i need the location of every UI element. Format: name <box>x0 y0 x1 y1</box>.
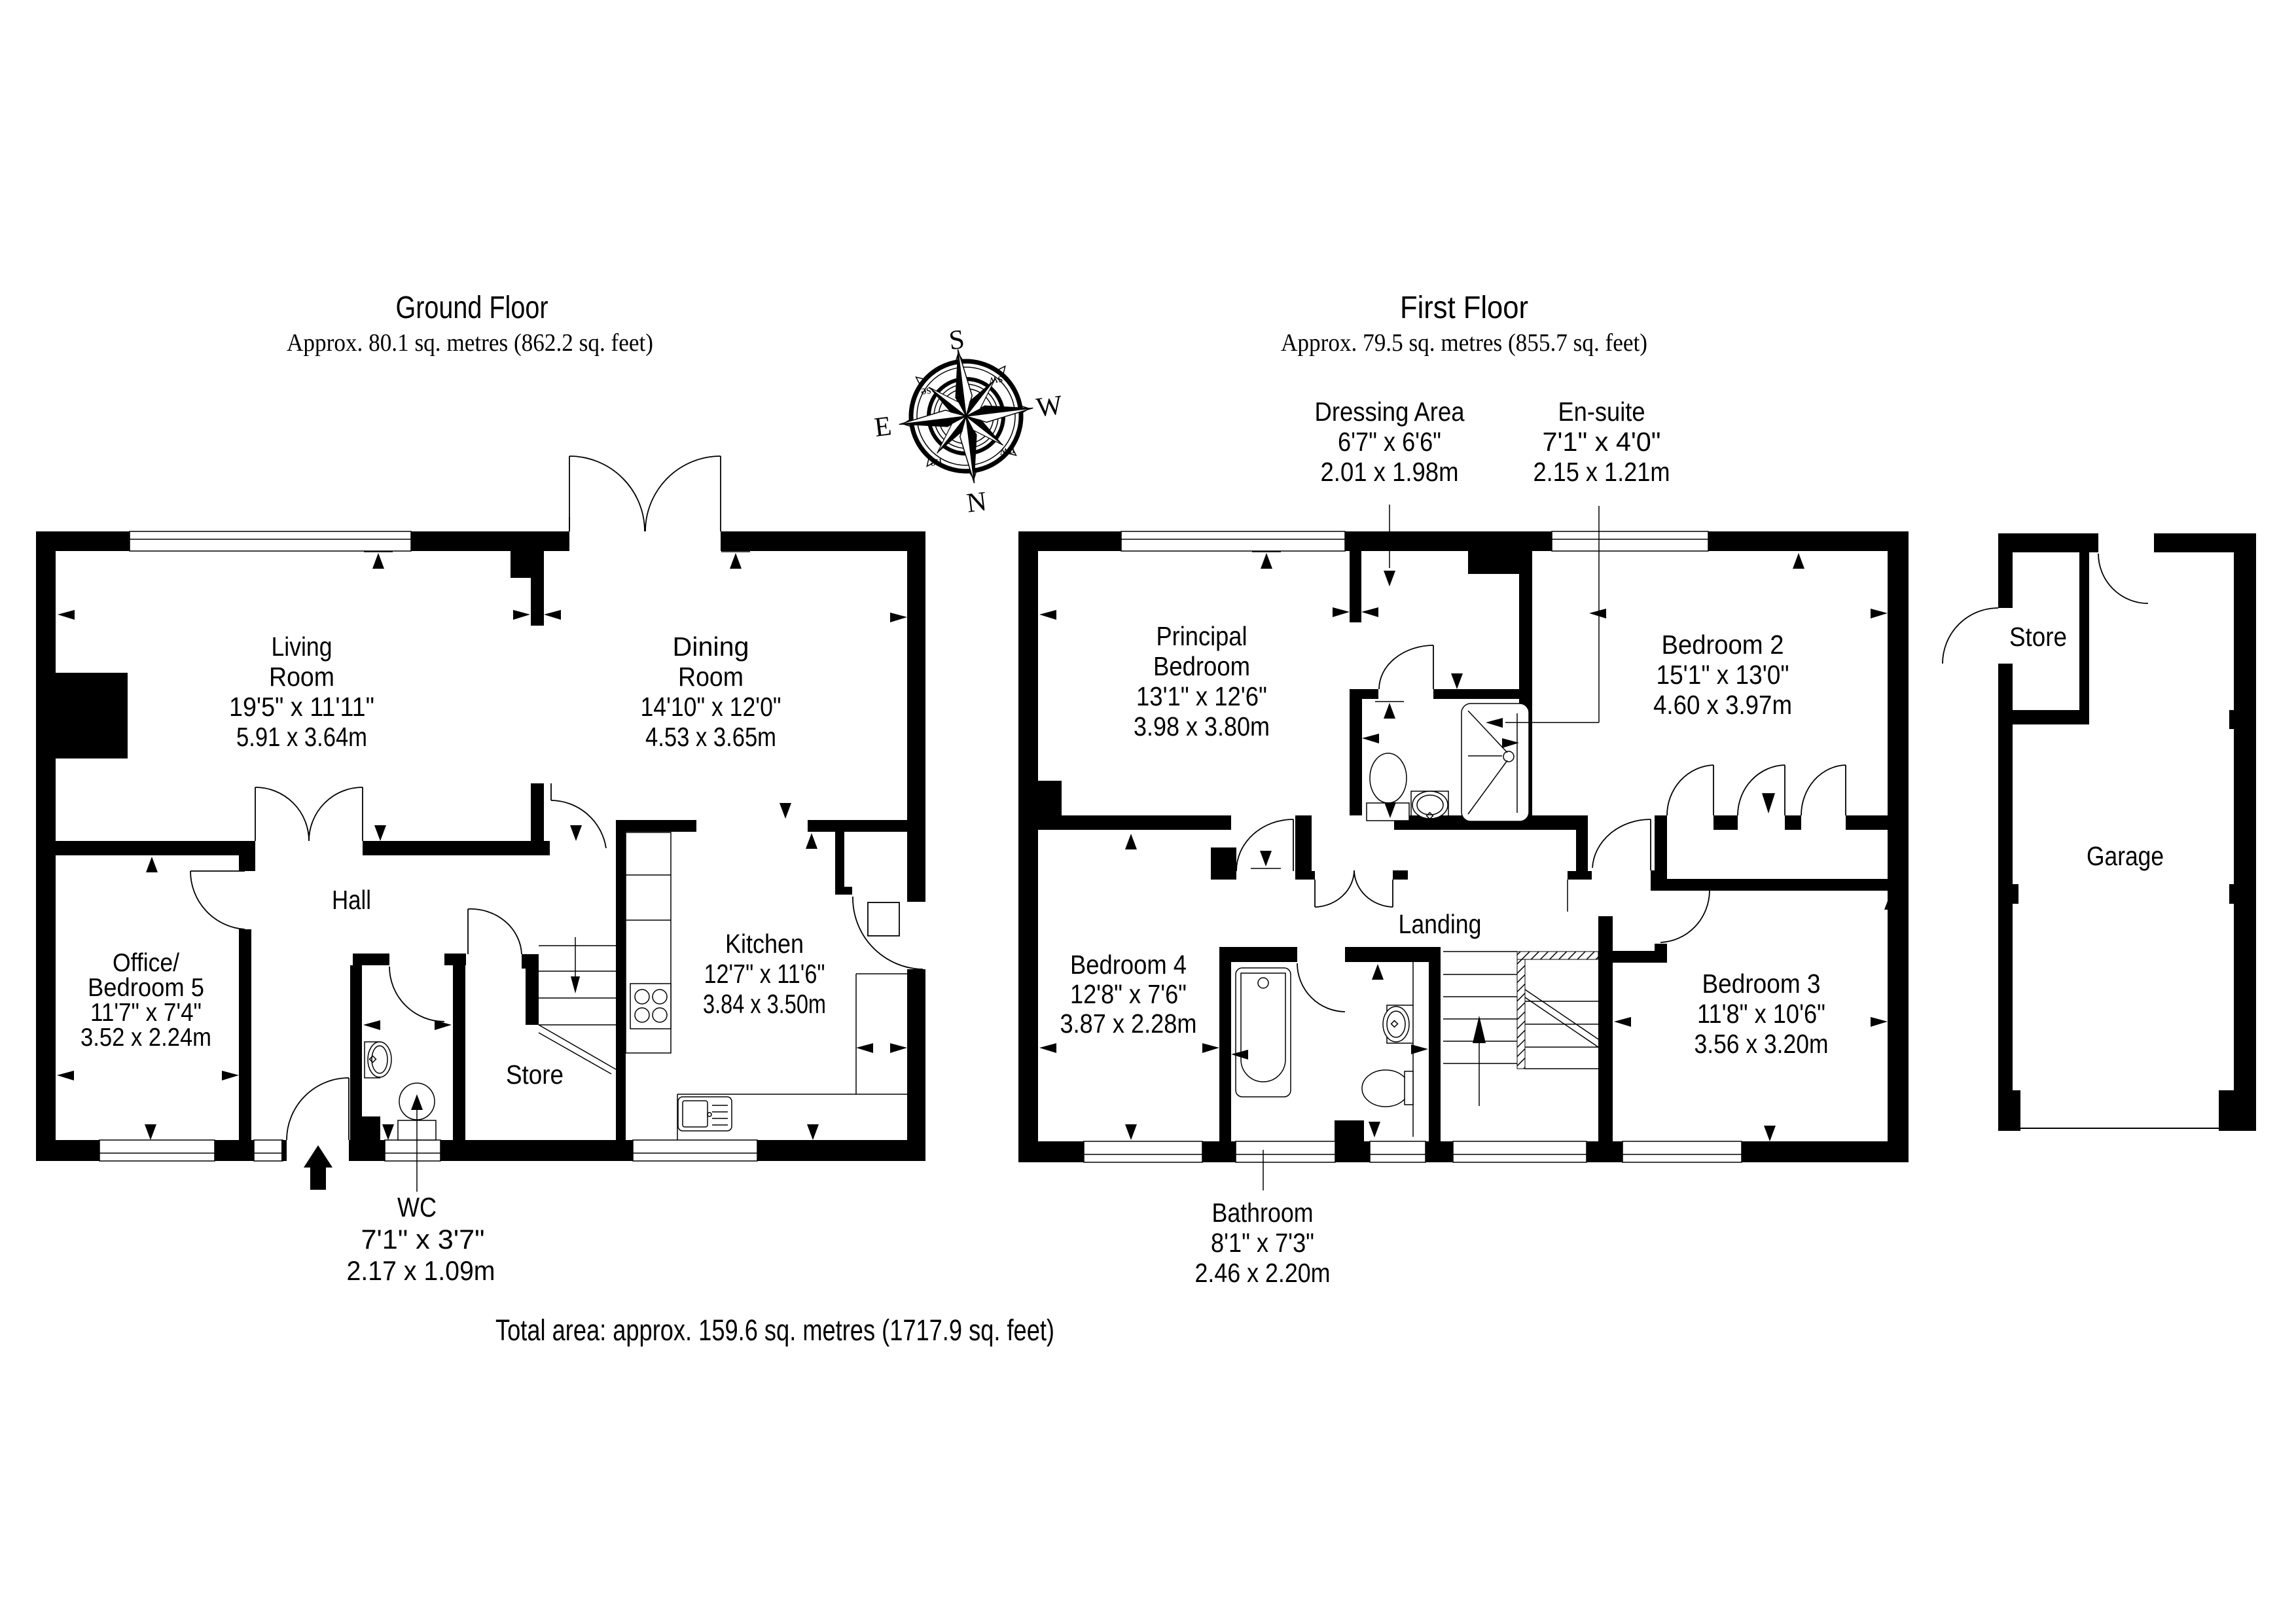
svg-text:3.84 x 3.50m: 3.84 x 3.50m <box>703 989 826 1019</box>
svg-text:N: N <box>965 486 988 518</box>
svg-text:W: W <box>1035 390 1064 423</box>
svg-text:Room: Room <box>678 662 744 692</box>
svg-text:Bedroom: Bedroom <box>1153 651 1250 681</box>
svg-text:Approx. 80.1 sq. metres (862.2: Approx. 80.1 sq. metres (862.2 sq. feet) <box>287 329 653 357</box>
svg-text:13'1" x 12'6": 13'1" x 12'6" <box>1136 681 1267 711</box>
svg-text:Garage: Garage <box>2087 841 2164 871</box>
svg-text:4.60 x 3.97m: 4.60 x 3.97m <box>1653 690 1792 720</box>
svg-text:2.01 x 1.98m: 2.01 x 1.98m <box>1321 457 1459 487</box>
svg-text:Living: Living <box>272 632 332 662</box>
svg-text:2.17 x 1.09m: 2.17 x 1.09m <box>347 1255 495 1286</box>
svg-text:Bedroom 3: Bedroom 3 <box>1702 969 1821 999</box>
svg-text:sw: sw <box>988 373 1004 388</box>
svg-text:Principal: Principal <box>1157 621 1247 651</box>
svg-text:15'1" x 13'0": 15'1" x 13'0" <box>1657 660 1789 690</box>
svg-text:En-suite: En-suite <box>1558 397 1645 427</box>
svg-text:ne: ne <box>929 455 942 471</box>
svg-text:Approx. 79.5 sq. metres (855.7: Approx. 79.5 sq. metres (855.7 sq. feet) <box>1281 329 1647 357</box>
svg-text:se: se <box>920 384 932 399</box>
svg-text:First Floor: First Floor <box>1400 291 1528 325</box>
svg-text:11'7" x 7'4": 11'7" x 7'4" <box>90 999 202 1027</box>
svg-text:WC: WC <box>397 1192 437 1222</box>
svg-text:2.15 x 1.21m: 2.15 x 1.21m <box>1534 457 1670 487</box>
svg-text:nw: nw <box>999 444 1016 459</box>
svg-text:8'1" x 7'3": 8'1" x 7'3" <box>1211 1228 1314 1258</box>
svg-text:11'8" x 10'6": 11'8" x 10'6" <box>1697 999 1825 1029</box>
svg-text:Bathroom: Bathroom <box>1212 1198 1314 1228</box>
svg-text:3.98 x 3.80m: 3.98 x 3.80m <box>1134 711 1270 741</box>
svg-text:Bedroom 4: Bedroom 4 <box>1070 950 1187 980</box>
svg-text:Ground Floor: Ground Floor <box>396 291 548 325</box>
svg-text:6'7" x 6'6": 6'7" x 6'6" <box>1338 427 1441 457</box>
svg-text:Store: Store <box>2009 622 2067 652</box>
svg-text:12'8" x 7'6": 12'8" x 7'6" <box>1070 979 1187 1009</box>
svg-text:Dining: Dining <box>673 632 749 662</box>
svg-text:19'5" x 11'11": 19'5" x 11'11" <box>229 692 374 722</box>
svg-text:Hall: Hall <box>332 885 371 915</box>
svg-text:3.52 x 2.24m: 3.52 x 2.24m <box>81 1024 211 1052</box>
svg-text:7'1" x 4'0": 7'1" x 4'0" <box>1543 427 1661 457</box>
svg-text:Office/: Office/ <box>113 949 179 977</box>
svg-text:Total area: approx. 159.6 sq.: Total area: approx. 159.6 sq. metres (17… <box>495 1313 1054 1347</box>
svg-text:3.87 x 2.28m: 3.87 x 2.28m <box>1060 1008 1197 1039</box>
svg-text:Kitchen: Kitchen <box>725 929 804 959</box>
svg-text:14'10" x 12'0": 14'10" x 12'0" <box>641 692 781 722</box>
svg-text:4.53 x 3.65m: 4.53 x 3.65m <box>645 722 776 752</box>
svg-text:12'7" x 11'6": 12'7" x 11'6" <box>704 959 825 989</box>
svg-text:Landing: Landing <box>1399 909 1482 939</box>
svg-text:7'1" x 3'7": 7'1" x 3'7" <box>361 1224 485 1255</box>
svg-text:Bedroom 2: Bedroom 2 <box>1662 630 1784 660</box>
svg-text:Bedroom 5: Bedroom 5 <box>88 974 204 1002</box>
svg-text:Room: Room <box>269 662 334 692</box>
svg-text:2.46 x 2.20m: 2.46 x 2.20m <box>1195 1258 1331 1288</box>
svg-text:Dressing Area: Dressing Area <box>1315 397 1465 427</box>
svg-text:Store: Store <box>506 1060 564 1090</box>
svg-text:3.56 x 3.20m: 3.56 x 3.20m <box>1695 1029 1829 1059</box>
svg-text:5.91 x 3.64m: 5.91 x 3.64m <box>236 722 367 752</box>
